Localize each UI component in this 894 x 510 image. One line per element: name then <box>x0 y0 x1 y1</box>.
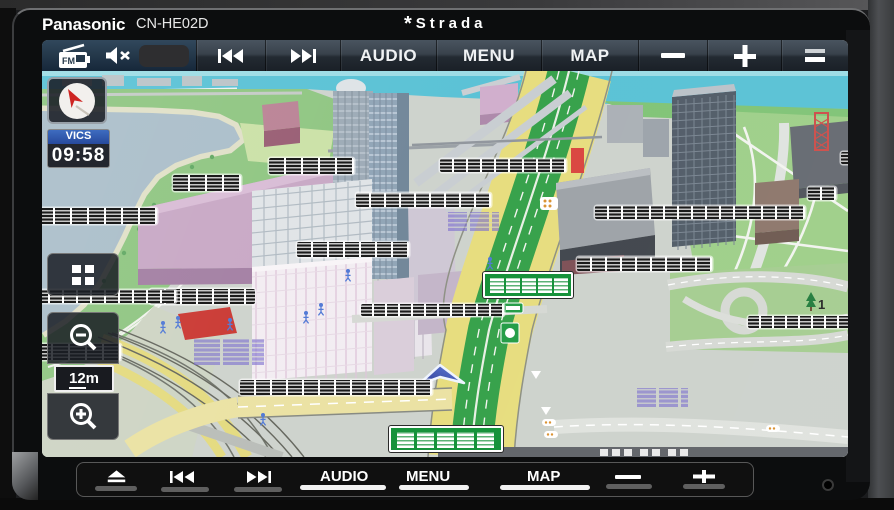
svg-text:1: 1 <box>818 297 825 312</box>
svg-text:FM: FM <box>62 56 75 66</box>
